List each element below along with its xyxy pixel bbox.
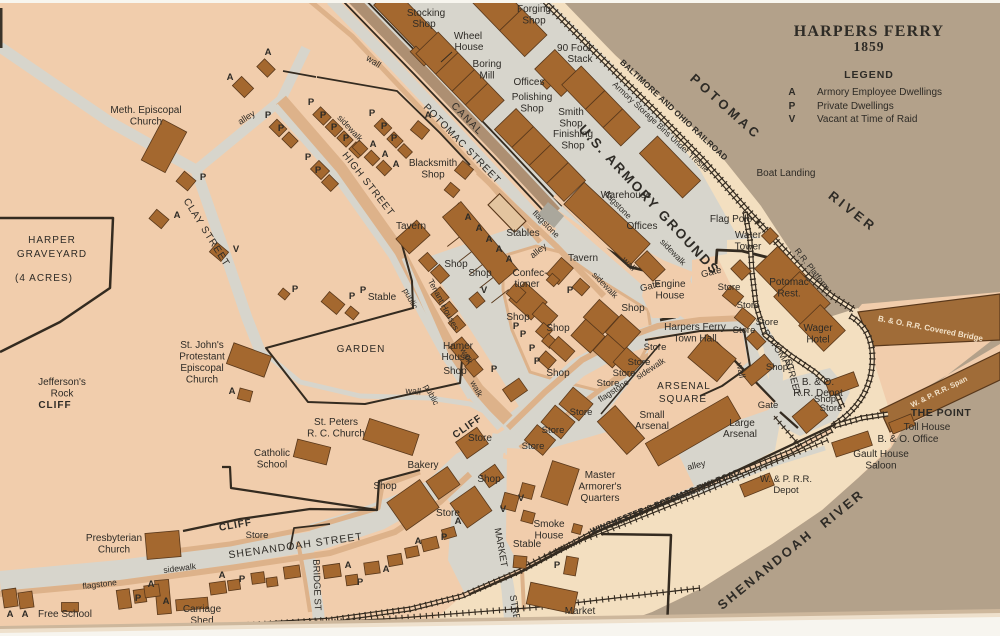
- svg-text:V: V: [518, 493, 525, 504]
- svg-text:A: A: [22, 609, 29, 620]
- svg-text:Stocking: Stocking: [407, 8, 445, 19]
- svg-text:Large: Large: [729, 418, 755, 429]
- svg-text:A: A: [788, 87, 795, 98]
- svg-text:Offices: Offices: [514, 77, 545, 88]
- svg-text:Hamer: Hamer: [443, 341, 474, 352]
- svg-text:Stack: Stack: [567, 54, 593, 65]
- svg-text:Church: Church: [130, 117, 162, 128]
- svg-text:Smoke: Smoke: [533, 519, 565, 530]
- svg-text:A: A: [163, 596, 170, 607]
- svg-text:P: P: [305, 152, 312, 163]
- svg-text:Water: Water: [735, 230, 762, 241]
- svg-text:Catholic: Catholic: [254, 448, 290, 459]
- svg-text:Depot: Depot: [773, 485, 799, 496]
- svg-text:P: P: [789, 101, 796, 112]
- svg-text:Store: Store: [570, 407, 593, 418]
- svg-text:School: School: [257, 460, 288, 471]
- svg-text:Shop: Shop: [766, 362, 788, 373]
- svg-text:HARPER: HARPER: [28, 235, 76, 246]
- svg-text:St. John's: St. John's: [180, 340, 224, 351]
- svg-text:Master: Master: [585, 470, 616, 481]
- svg-text:CLIFF: CLIFF: [38, 400, 71, 411]
- svg-text:GARDEN: GARDEN: [337, 344, 386, 355]
- svg-text:Store: Store: [542, 425, 565, 436]
- svg-text:Small: Small: [639, 410, 664, 421]
- svg-text:Boring: Boring: [473, 59, 502, 70]
- svg-text:Blacksmith: Blacksmith: [409, 158, 457, 169]
- svg-text:Store: Store: [628, 357, 651, 368]
- svg-text:V: V: [233, 244, 240, 255]
- svg-text:House: House: [455, 42, 484, 53]
- svg-text:Offices: Offices: [627, 221, 658, 232]
- svg-text:Smith: Smith: [558, 107, 584, 118]
- svg-text:P: P: [331, 122, 338, 133]
- svg-text:Jefferson's: Jefferson's: [38, 377, 86, 388]
- svg-text:Rock: Rock: [51, 389, 75, 400]
- svg-text:A: A: [393, 159, 400, 170]
- svg-text:B. & O.: B. & O.: [802, 377, 834, 388]
- svg-text:R. C. Church: R. C. Church: [307, 429, 365, 440]
- svg-text:wall: wall: [404, 385, 421, 396]
- svg-text:V: V: [500, 504, 507, 515]
- svg-text:Harpers Ferry: Harpers Ferry: [664, 322, 726, 333]
- svg-text:P: P: [343, 133, 350, 144]
- svg-text:P: P: [513, 321, 520, 332]
- svg-text:A: A: [455, 516, 462, 527]
- svg-text:ARSENAL: ARSENAL: [657, 381, 711, 392]
- svg-text:A: A: [382, 149, 389, 160]
- svg-text:Store: Store: [718, 282, 741, 293]
- svg-text:Free School: Free School: [38, 609, 92, 620]
- svg-text:Carriage: Carriage: [183, 604, 222, 615]
- svg-text:Mill: Mill: [480, 71, 495, 82]
- svg-text:Private Dwellings: Private Dwellings: [817, 101, 894, 112]
- svg-text:Store: Store: [733, 325, 756, 336]
- svg-text:Shop: Shop: [561, 141, 585, 152]
- svg-text:Store: Store: [820, 403, 843, 414]
- svg-text:Gault House: Gault House: [853, 449, 909, 460]
- svg-text:Town Hall: Town Hall: [673, 334, 716, 345]
- svg-text:Bakery: Bakery: [407, 460, 438, 471]
- svg-text:P: P: [239, 574, 246, 585]
- svg-text:A: A: [476, 223, 483, 234]
- svg-text:P: P: [391, 133, 398, 144]
- svg-text:A: A: [148, 579, 155, 590]
- svg-text:P: P: [265, 110, 272, 121]
- svg-text:tioner: tioner: [514, 279, 540, 290]
- svg-text:Warehouse: Warehouse: [601, 190, 652, 201]
- svg-text:A: A: [486, 234, 493, 245]
- svg-text:W. & P. R.R.: W. & P. R.R.: [760, 474, 812, 485]
- svg-text:Tavern: Tavern: [568, 253, 598, 264]
- svg-text:(4 ACRES): (4 ACRES): [15, 273, 73, 284]
- svg-text:Saloon: Saloon: [865, 461, 896, 472]
- svg-text:A: A: [229, 386, 236, 397]
- svg-text:P: P: [529, 343, 536, 354]
- svg-text:SQUARE: SQUARE: [659, 394, 707, 405]
- svg-text:P: P: [278, 123, 285, 134]
- svg-text:Store: Store: [597, 378, 620, 389]
- svg-text:Arsenal: Arsenal: [723, 429, 757, 440]
- svg-text:Arsenal: Arsenal: [635, 421, 669, 432]
- svg-text:P: P: [441, 532, 448, 543]
- svg-text:Tower: Tower: [735, 242, 762, 253]
- svg-text:HARPERS FERRY: HARPERS FERRY: [794, 23, 945, 40]
- svg-text:A: A: [370, 139, 377, 150]
- svg-text:Shop: Shop: [421, 170, 445, 181]
- svg-text:Episcopal: Episcopal: [180, 363, 223, 374]
- svg-text:House: House: [656, 291, 685, 302]
- svg-text:Shop: Shop: [477, 474, 501, 485]
- svg-text:90 Foot: 90 Foot: [557, 43, 591, 54]
- svg-text:Hotel: Hotel: [806, 335, 829, 346]
- svg-text:Polishing: Polishing: [512, 92, 553, 103]
- svg-text:Vacant at Time of Raid: Vacant at Time of Raid: [817, 114, 917, 125]
- svg-text:P: P: [320, 110, 327, 121]
- svg-text:P: P: [491, 364, 498, 375]
- svg-text:GRAVEYARD: GRAVEYARD: [17, 249, 87, 260]
- svg-text:Wager: Wager: [803, 323, 833, 334]
- svg-text:P: P: [349, 291, 356, 302]
- svg-text:P: P: [315, 165, 322, 176]
- svg-text:THE POINT: THE POINT: [911, 407, 972, 419]
- svg-text:P: P: [360, 285, 367, 296]
- svg-text:P: P: [520, 329, 527, 340]
- svg-text:Shop: Shop: [443, 366, 467, 377]
- svg-text:A: A: [174, 210, 181, 221]
- svg-text:P: P: [534, 356, 541, 367]
- svg-text:Rest.: Rest.: [777, 289, 800, 300]
- svg-text:A: A: [227, 72, 234, 83]
- svg-text:Toll House: Toll House: [904, 422, 951, 433]
- svg-text:Finishing: Finishing: [553, 129, 593, 140]
- svg-text:Store: Store: [468, 433, 492, 444]
- svg-text:Armorer's: Armorer's: [578, 482, 621, 493]
- svg-text:A: A: [345, 560, 352, 571]
- svg-text:Stables: Stables: [506, 228, 539, 239]
- svg-text:A: A: [425, 110, 432, 121]
- svg-text:P: P: [135, 593, 142, 604]
- svg-text:Shop: Shop: [546, 323, 570, 334]
- svg-text:Shop: Shop: [621, 303, 645, 314]
- svg-text:A: A: [415, 536, 422, 547]
- svg-text:V: V: [481, 285, 488, 296]
- svg-text:Shop: Shop: [520, 104, 544, 115]
- svg-text:V: V: [789, 114, 796, 125]
- svg-text:Market: Market: [565, 606, 596, 617]
- svg-text:A: A: [265, 47, 272, 58]
- svg-text:Store: Store: [737, 300, 760, 311]
- svg-text:Protestant: Protestant: [179, 352, 225, 363]
- svg-text:Confec-: Confec-: [512, 268, 547, 279]
- svg-text:Quarters: Quarters: [581, 493, 620, 504]
- svg-text:P: P: [381, 121, 388, 132]
- svg-text:P: P: [292, 284, 299, 295]
- svg-text:Store: Store: [246, 530, 269, 541]
- svg-text:LEGEND: LEGEND: [844, 69, 894, 81]
- svg-text:Church: Church: [98, 545, 130, 556]
- svg-text:Presbyterian: Presbyterian: [86, 533, 142, 544]
- svg-text:A: A: [506, 254, 513, 265]
- svg-text:Store: Store: [756, 317, 779, 328]
- svg-text:Shop: Shop: [522, 16, 546, 27]
- svg-text:P: P: [357, 577, 364, 588]
- svg-text:Armory Employee Dwellings: Armory Employee Dwellings: [817, 87, 942, 98]
- svg-text:P: P: [200, 172, 207, 183]
- svg-text:A: A: [219, 570, 226, 581]
- svg-text:Stable: Stable: [368, 292, 397, 303]
- svg-text:Shop: Shop: [468, 268, 492, 279]
- svg-text:P: P: [554, 560, 561, 571]
- svg-text:Shop: Shop: [444, 259, 468, 270]
- svg-text:Tavern: Tavern: [396, 221, 426, 232]
- svg-text:Meth. Episcopal: Meth. Episcopal: [110, 105, 181, 116]
- svg-text:P: P: [369, 108, 376, 119]
- svg-text:St. Peters: St. Peters: [314, 417, 358, 428]
- svg-text:1859: 1859: [854, 39, 885, 54]
- svg-text:A: A: [496, 244, 503, 255]
- svg-text:BRIDGE ST: BRIDGE ST: [310, 559, 323, 611]
- svg-text:Stable: Stable: [513, 539, 542, 550]
- svg-text:Church: Church: [186, 375, 218, 386]
- svg-text:A: A: [7, 609, 14, 620]
- svg-text:Potomac: Potomac: [769, 277, 808, 288]
- svg-text:Gate: Gate: [758, 400, 779, 411]
- svg-text:Wheel: Wheel: [454, 31, 482, 42]
- svg-text:P: P: [567, 285, 574, 296]
- svg-text:Shop: Shop: [412, 19, 436, 30]
- svg-text:Flag Pole: Flag Pole: [710, 214, 753, 225]
- svg-text:Shop: Shop: [559, 119, 583, 130]
- svg-text:Store: Store: [522, 441, 545, 452]
- svg-text:A: A: [465, 212, 472, 223]
- svg-text:Shop: Shop: [373, 481, 397, 492]
- svg-text:Shop: Shop: [546, 368, 570, 379]
- svg-text:A: A: [383, 564, 390, 575]
- svg-text:Boat Landing: Boat Landing: [757, 168, 816, 179]
- svg-text:Store: Store: [644, 342, 667, 353]
- svg-text:B. & O. Office: B. & O. Office: [878, 434, 939, 445]
- svg-text:House: House: [442, 352, 471, 363]
- svg-text:P: P: [308, 97, 315, 108]
- svg-text:Forging: Forging: [517, 4, 551, 15]
